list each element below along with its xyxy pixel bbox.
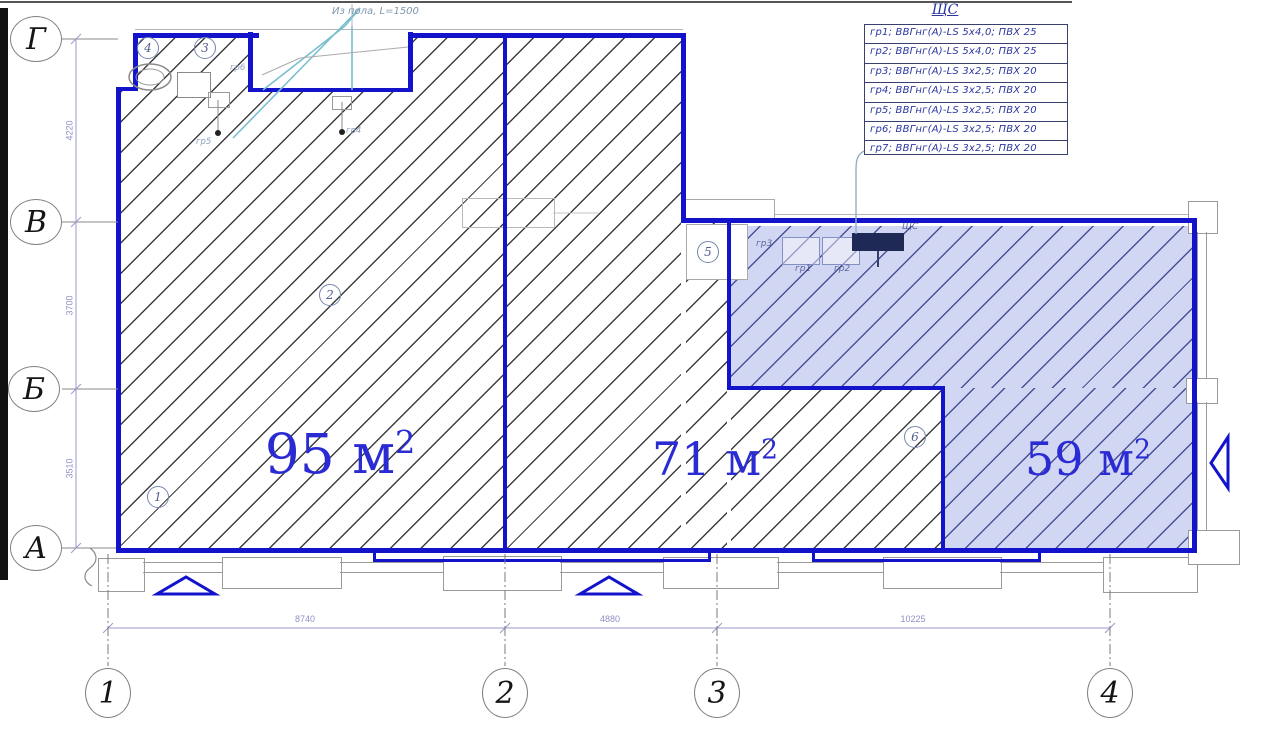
pilaster-s6 <box>1103 557 1198 593</box>
faint-duct-rect <box>462 198 555 228</box>
plan-mark-6: 6 <box>904 426 926 448</box>
pilaster-e2 <box>1186 378 1218 404</box>
plan-mark-1: 1 <box>147 486 169 508</box>
wall-top-mid <box>410 33 686 38</box>
panel-shchs-stub <box>877 251 879 267</box>
fixture-box-1 <box>208 92 230 108</box>
legend-row-3: гр3; ВВГнг(А)-LS 3х2,5; ПВХ 20 <box>865 64 1067 83</box>
floor-plan-canvas: Г В Б А 1 2 3 4 4220 3700 3510 8740 4880… <box>0 0 1261 734</box>
legend-row-7: гр7; ВВГнг(А)-LS 3х2,5; ПВХ 20 <box>865 141 1067 159</box>
panel-shchs-box <box>852 233 904 251</box>
plan-mark-4: 4 <box>137 37 159 59</box>
plan-mark-1-label: 1 <box>154 490 162 504</box>
plan-mark-6-label: 6 <box>911 430 919 444</box>
wall-left-main <box>116 87 121 552</box>
plan-mark-3: 3 <box>194 37 216 59</box>
axis-col-4: 4 <box>1087 668 1133 718</box>
label-shchs-panel: ЩС <box>902 222 918 232</box>
legend-title: ЩС <box>918 2 972 18</box>
room-71-area-label: 71 м2 <box>635 432 795 486</box>
pilaster-s1 <box>98 558 145 592</box>
axis-row-g: Г <box>10 16 62 62</box>
bay-face-2 <box>812 559 1041 562</box>
room-59-area-unit: м <box>1098 432 1134 486</box>
vestibule-wall-bottom <box>248 88 413 92</box>
top-frame-line <box>0 1 1072 3</box>
legend-row-1: гр1; ВВГнг(А)-LS 5х4,0; ПВХ 25 <box>865 25 1067 44</box>
legend-row-5: гр5; ВВГнг(А)-LS 3х2,5; ПВХ 20 <box>865 103 1067 122</box>
corner-step-mask <box>110 30 135 88</box>
vestibule-wall-left <box>248 32 253 92</box>
entry-arrow-1 <box>157 577 215 594</box>
dim-row-3510: 3510 <box>65 449 76 489</box>
label-gr4: гр4 <box>346 126 361 136</box>
axis-row-b-label: Б <box>23 372 45 407</box>
axis-row-b: Б <box>8 366 60 412</box>
room-95-area-unit: м <box>352 422 395 486</box>
dim-col-10225: 10225 <box>883 614 943 624</box>
legend-row-4: гр4; ВВГнг(А)-LS 3х2,5; ПВХ 20 <box>865 83 1067 102</box>
dim-tick-3 <box>712 623 722 633</box>
dim-tick-v <box>71 217 81 227</box>
zone-wall-west <box>727 223 731 390</box>
wall-bottom <box>116 548 945 553</box>
label-gr1: гр1 <box>795 264 811 274</box>
legend-table: гр1; ВВГнг(А)-LS 5х4,0; ПВХ 25 гр2; ВВГн… <box>864 24 1068 155</box>
axis-row-v-label: В <box>25 205 47 240</box>
window-s3 <box>560 562 663 573</box>
pilaster-s2 <box>222 557 342 589</box>
plan-mark-2: 2 <box>319 284 341 306</box>
room-71-area-sup: 2 <box>761 435 778 466</box>
label-gr5: гр5 <box>196 137 211 147</box>
outer-face-top <box>135 29 683 30</box>
window-s5 <box>1000 562 1103 573</box>
legend-row-6: гр6; ВВГнг(А)-LS 3х2,5; ПВХ 20 <box>865 122 1067 141</box>
window-s2 <box>340 562 443 573</box>
dim-tick-g <box>71 34 81 44</box>
plan-mark-4-label: 4 <box>144 41 152 55</box>
entry-arrow-east <box>1211 437 1228 488</box>
label-gr3: гр3 <box>756 239 772 249</box>
sink-cabinet <box>177 72 211 98</box>
room-95-area-value: 95 <box>265 422 335 486</box>
panel-shk1-box <box>782 237 820 265</box>
room-59-area-sup: 2 <box>1134 435 1151 466</box>
plan-mark-2-label: 2 <box>326 288 334 302</box>
dim-row-3700: 3700 <box>65 286 76 326</box>
window-s1 <box>143 562 222 573</box>
axis-col-3: 3 <box>694 668 740 718</box>
room-95-area-sup: 2 <box>395 424 415 462</box>
wall-notch <box>683 199 775 219</box>
dim-row-4220: 4220 <box>65 111 76 151</box>
plan-mark-5: 5 <box>697 241 719 263</box>
axis-col-1: 1 <box>85 668 131 718</box>
wall-east-of-71 <box>681 35 686 223</box>
plan-mark-3-label: 3 <box>201 41 209 55</box>
vestibule <box>252 30 412 90</box>
zone-wall-east <box>1192 223 1197 553</box>
dim-col-8740: 8740 <box>275 614 335 624</box>
zone-wall-south <box>941 548 1197 553</box>
outer-face-axisB <box>775 214 1188 215</box>
left-frame-strip <box>0 8 8 580</box>
room-71-area-unit: м <box>725 432 761 486</box>
dim-tick-2 <box>500 623 510 633</box>
axis-col-2: 2 <box>482 668 528 718</box>
entry-arrow-2 <box>580 577 638 594</box>
dim-col-4880: 4880 <box>580 614 640 624</box>
axis-col-3-label: 3 <box>707 676 726 711</box>
label-gr2: гр2 <box>834 264 850 274</box>
fixture-box-2 <box>332 96 352 110</box>
axis-col-4-label: 4 <box>1100 676 1119 711</box>
room-95-area-label: 95 м2 <box>250 422 430 486</box>
dim-tick-b <box>71 384 81 394</box>
wall-left-upper <box>133 33 138 91</box>
legend-row-2: гр2; ВВГнг(А)-LS 5х4,0; ПВХ 25 <box>865 44 1067 63</box>
wall-axisB-top <box>681 218 1197 223</box>
zone-wall-step <box>727 386 945 390</box>
plan-mark-5-label: 5 <box>704 245 712 259</box>
room-71-area-value: 71 <box>652 432 711 486</box>
axis-row-g-label: Г <box>26 22 46 57</box>
window-e2 <box>1197 402 1207 530</box>
wall-divider-1-2 <box>503 35 507 550</box>
axis-col-2-label: 2 <box>495 676 514 711</box>
window-s4 <box>777 562 883 573</box>
axis-row-a-label: А <box>25 531 48 566</box>
axis-row-a: А <box>10 525 62 571</box>
room-59-area-value: 59 <box>1025 432 1084 486</box>
axis-row-v: В <box>10 199 62 245</box>
cable-entry-note: Из пола, L=1500 <box>332 6 419 17</box>
break-squiggle <box>85 548 96 586</box>
dim-tick-a <box>71 543 81 553</box>
label-gr6: гр6 <box>230 63 245 73</box>
vestibule-wall-right <box>408 32 413 92</box>
bay-face-1 <box>373 559 711 562</box>
dim-tick-1 <box>103 623 113 633</box>
axis-col-1-label: 1 <box>98 676 117 711</box>
window-e1 <box>1197 232 1207 378</box>
dim-tick-4 <box>1105 623 1115 633</box>
zone-wall-west2 <box>941 386 945 552</box>
room-59-area-label: 59 м2 <box>1008 432 1168 486</box>
